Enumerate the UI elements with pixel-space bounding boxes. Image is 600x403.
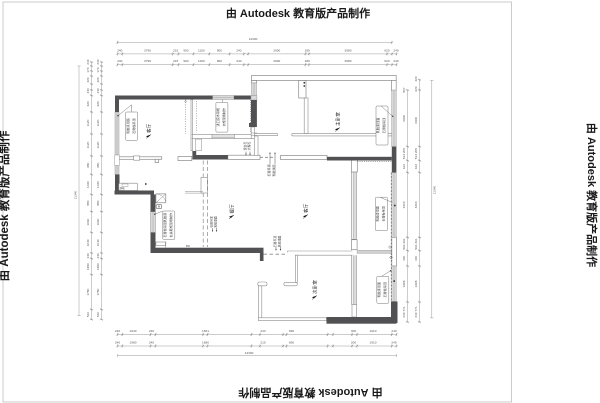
svg-text:1120: 1120 [86,141,90,148]
svg-text:1040: 1040 [86,239,90,246]
svg-text:690: 690 [289,341,294,345]
svg-text:200: 200 [351,341,356,345]
svg-text:3796: 3796 [144,59,151,63]
svg-text:510: 510 [96,312,100,317]
svg-text:乳胶漆顶面: 乳胶漆顶面 [376,282,381,297]
svg-text:300: 300 [351,329,356,333]
svg-text:620: 620 [414,86,418,91]
svg-text:620: 620 [384,48,389,52]
svg-text:衣柜现场制作: 衣柜现场制作 [221,108,226,127]
svg-text:1020: 1020 [86,181,90,188]
svg-text:乳胶漆顶面: 乳胶漆顶面 [375,118,380,133]
svg-text:乳胶漆面: 乳胶漆面 [277,236,282,248]
svg-text:次卧室: 次卧室 [312,280,319,294]
svg-text:420: 420 [86,77,90,82]
svg-text:180: 180 [305,59,310,63]
svg-text:240 771: 240 771 [402,306,406,317]
svg-text:420: 420 [96,77,100,82]
svg-text:乳胶漆面: 乳胶漆面 [271,164,276,176]
svg-text:石膏板吊顶: 石膏板吊顶 [131,118,136,133]
svg-text:3980: 3980 [345,59,352,63]
svg-text:243: 243 [260,329,265,333]
svg-text:石膏板吊顶: 石膏板吊顶 [381,118,386,133]
svg-text:807: 807 [402,87,406,92]
svg-text:客厅: 客厅 [146,123,153,133]
svg-text:M: M [158,205,160,209]
svg-text:170: 170 [96,67,100,72]
svg-text:1060: 1060 [96,218,100,225]
svg-text:1965: 1965 [402,280,406,287]
svg-text:2900: 2900 [414,117,418,124]
svg-text:240: 240 [115,329,120,333]
svg-text:1965: 1965 [414,280,418,287]
svg-text:1910: 1910 [370,329,377,333]
svg-text:900: 900 [183,59,188,63]
svg-text:由 Autodesk 教育版产品制作: 由 Autodesk 教育版产品制作 [238,386,382,400]
svg-text:950: 950 [86,162,90,167]
svg-text:3796: 3796 [144,48,151,52]
svg-text:大理石: 大理石 [246,142,251,151]
svg-text:240: 240 [117,48,122,52]
svg-text:14300: 14300 [245,351,254,355]
svg-text:1780: 1780 [86,288,90,295]
svg-text:11340: 11340 [73,191,77,200]
svg-text:240: 240 [96,59,100,64]
svg-text:1120: 1120 [86,119,90,126]
svg-text:由 Autodesk 教育版产品制作: 由 Autodesk 教育版产品制作 [226,6,370,20]
svg-text:1650: 1650 [96,263,100,270]
svg-text:240: 240 [115,341,120,345]
svg-text:440: 440 [402,256,406,261]
svg-text:900: 900 [217,59,222,63]
svg-text:2900: 2900 [402,115,406,122]
svg-text:620: 620 [86,101,90,106]
svg-text:3400: 3400 [402,201,406,208]
svg-text:3400: 3400 [414,201,418,208]
svg-text:880: 880 [96,200,100,205]
svg-text:240 771: 240 771 [414,306,418,317]
svg-text:乳胶漆顶面: 乳胶漆顶面 [125,118,130,133]
svg-text:561 261: 561 261 [402,238,406,249]
svg-text:440: 440 [414,256,418,261]
svg-text:240: 240 [96,88,100,93]
svg-text:2600: 2600 [273,48,280,52]
svg-text:2600: 2600 [273,59,280,63]
svg-text:客厅: 客厅 [303,203,310,213]
svg-text:1980: 1980 [130,341,137,345]
svg-text:620: 620 [96,101,100,106]
svg-text:900: 900 [183,48,188,52]
svg-text:1940: 1940 [130,329,137,333]
svg-text:240: 240 [117,59,122,63]
svg-text:180: 180 [305,48,310,52]
svg-text:850: 850 [186,245,191,248]
svg-text:240: 240 [391,341,396,345]
svg-text:240: 240 [393,48,398,52]
svg-text:513 205: 513 205 [414,148,418,159]
svg-text:950: 950 [96,162,100,167]
svg-text:1120: 1120 [96,141,100,148]
svg-text:240: 240 [96,253,100,258]
svg-text:乳胶漆面: 乳胶漆面 [213,216,218,228]
svg-text:420: 420 [414,76,418,81]
svg-text:石膏板吊顶: 石膏板吊顶 [381,206,386,221]
svg-text:1150: 1150 [198,59,205,63]
svg-text:880: 880 [86,200,90,205]
svg-text:主卧室: 主卧室 [335,112,342,126]
svg-text:餐厅: 餐厅 [229,204,236,214]
svg-text:1020: 1020 [96,181,100,188]
svg-text:1780: 1780 [96,288,100,295]
svg-text:240: 240 [86,88,90,93]
svg-text:240: 240 [149,341,154,345]
svg-text:215: 215 [173,59,178,63]
svg-text:1910: 1910 [370,341,377,345]
svg-text:240: 240 [86,59,90,64]
svg-text:620: 620 [384,59,389,63]
svg-text:乳胶漆顶面: 乳胶漆顶面 [375,206,380,221]
svg-text:240: 240 [236,48,241,52]
svg-text:14300: 14300 [249,37,258,41]
svg-text:240: 240 [236,59,241,63]
svg-text:900: 900 [217,48,222,52]
svg-text:170: 170 [86,67,90,72]
svg-text:石膏吊顶: 石膏吊顶 [272,236,277,248]
svg-text:240: 240 [391,329,396,333]
svg-text:690: 690 [289,329,294,333]
svg-text:1040: 1040 [96,239,100,246]
svg-text:612: 612 [414,164,418,169]
svg-text:由 Autodesk 教育版产品制作: 由 Autodesk 教育版产品制作 [585,123,599,267]
svg-text:11340: 11340 [433,186,437,195]
svg-text:1120: 1120 [96,119,100,126]
svg-text:1661: 1661 [202,329,209,333]
svg-text:石膏吊顶: 石膏吊顶 [266,164,271,176]
svg-text:1680: 1680 [202,341,209,345]
svg-text:240: 240 [86,253,90,258]
svg-text:561 261: 561 261 [414,238,418,249]
svg-text:1060: 1060 [86,218,90,225]
svg-text:612: 612 [402,164,406,169]
svg-text:215: 215 [260,341,265,345]
svg-text:510: 510 [86,312,90,317]
svg-text:240: 240 [149,329,154,333]
svg-text:石膏板吊顶: 石膏板吊顶 [382,282,387,297]
svg-text:石膏板吊顶乳胶漆: 石膏板吊顶乳胶漆 [162,213,167,238]
svg-text:1150: 1150 [198,48,205,52]
svg-text:1650: 1650 [86,263,90,270]
svg-text:由 Autodesk 教育版产品制作: 由 Autodesk 教育版产品制作 [0,130,11,281]
svg-text:玄关鞋柜现场制作: 玄关鞋柜现场制作 [168,213,173,238]
svg-text:215: 215 [173,48,178,52]
svg-text:进口实木吊柜: 进口实木吊柜 [215,108,220,127]
svg-text:240: 240 [393,59,398,63]
svg-text:513 205: 513 205 [402,148,406,159]
svg-text:3980: 3980 [345,48,352,52]
